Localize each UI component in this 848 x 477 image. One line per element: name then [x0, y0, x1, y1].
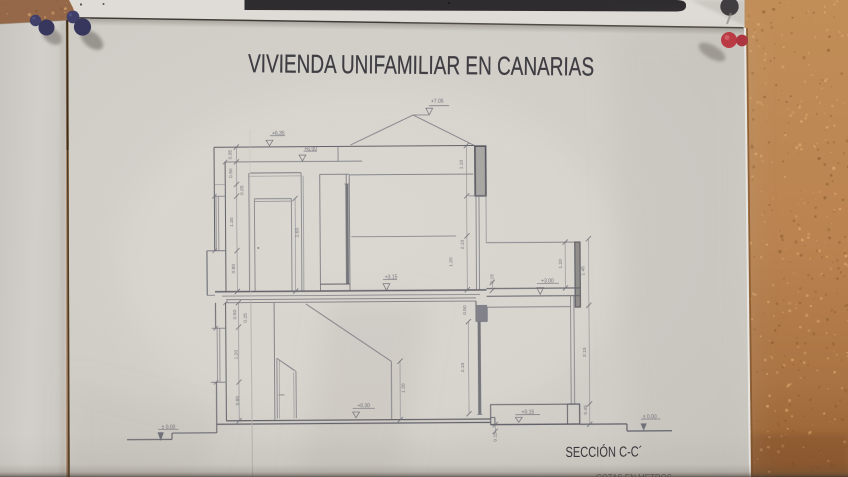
svg-text:0.15: 0.15	[489, 274, 495, 284]
svg-text:0.80: 0.80	[231, 264, 237, 274]
svg-text:0.25: 0.25	[243, 313, 249, 323]
svg-text:0.35: 0.35	[228, 150, 234, 160]
svg-text:0.50: 0.50	[462, 305, 468, 315]
svg-text:1.20: 1.20	[229, 217, 235, 227]
svg-text:± 0.00: ± 0.00	[161, 425, 175, 431]
svg-text:1.30: 1.30	[401, 383, 407, 393]
svg-text:0.80: 0.80	[235, 396, 241, 406]
svg-text:1.10: 1.10	[458, 160, 464, 170]
svg-text:+6.00: +6.00	[304, 146, 317, 152]
svg-text:0.45: 0.45	[583, 405, 589, 415]
svg-text:2.60: 2.60	[294, 227, 300, 237]
svg-text:1.20: 1.20	[233, 350, 239, 360]
svg-text:1.20: 1.20	[448, 257, 454, 267]
svg-text:2.10: 2.10	[460, 239, 466, 249]
svg-text:+7.05: +7.05	[431, 99, 444, 105]
svg-text:VIVIENDA UNIFAMILIAR EN CANARI: VIVIENDA UNIFAMILIAR EN CANARIAS	[248, 48, 594, 81]
svg-text:0.50: 0.50	[228, 168, 234, 178]
svg-text:1.45: 1.45	[580, 266, 586, 276]
svg-text:0.50: 0.50	[232, 309, 238, 319]
svg-text:2.15: 2.15	[582, 347, 588, 357]
svg-text:2.10: 2.10	[460, 362, 466, 372]
svg-text:1.20: 1.20	[558, 259, 564, 269]
svg-text:0.25: 0.25	[239, 185, 245, 195]
